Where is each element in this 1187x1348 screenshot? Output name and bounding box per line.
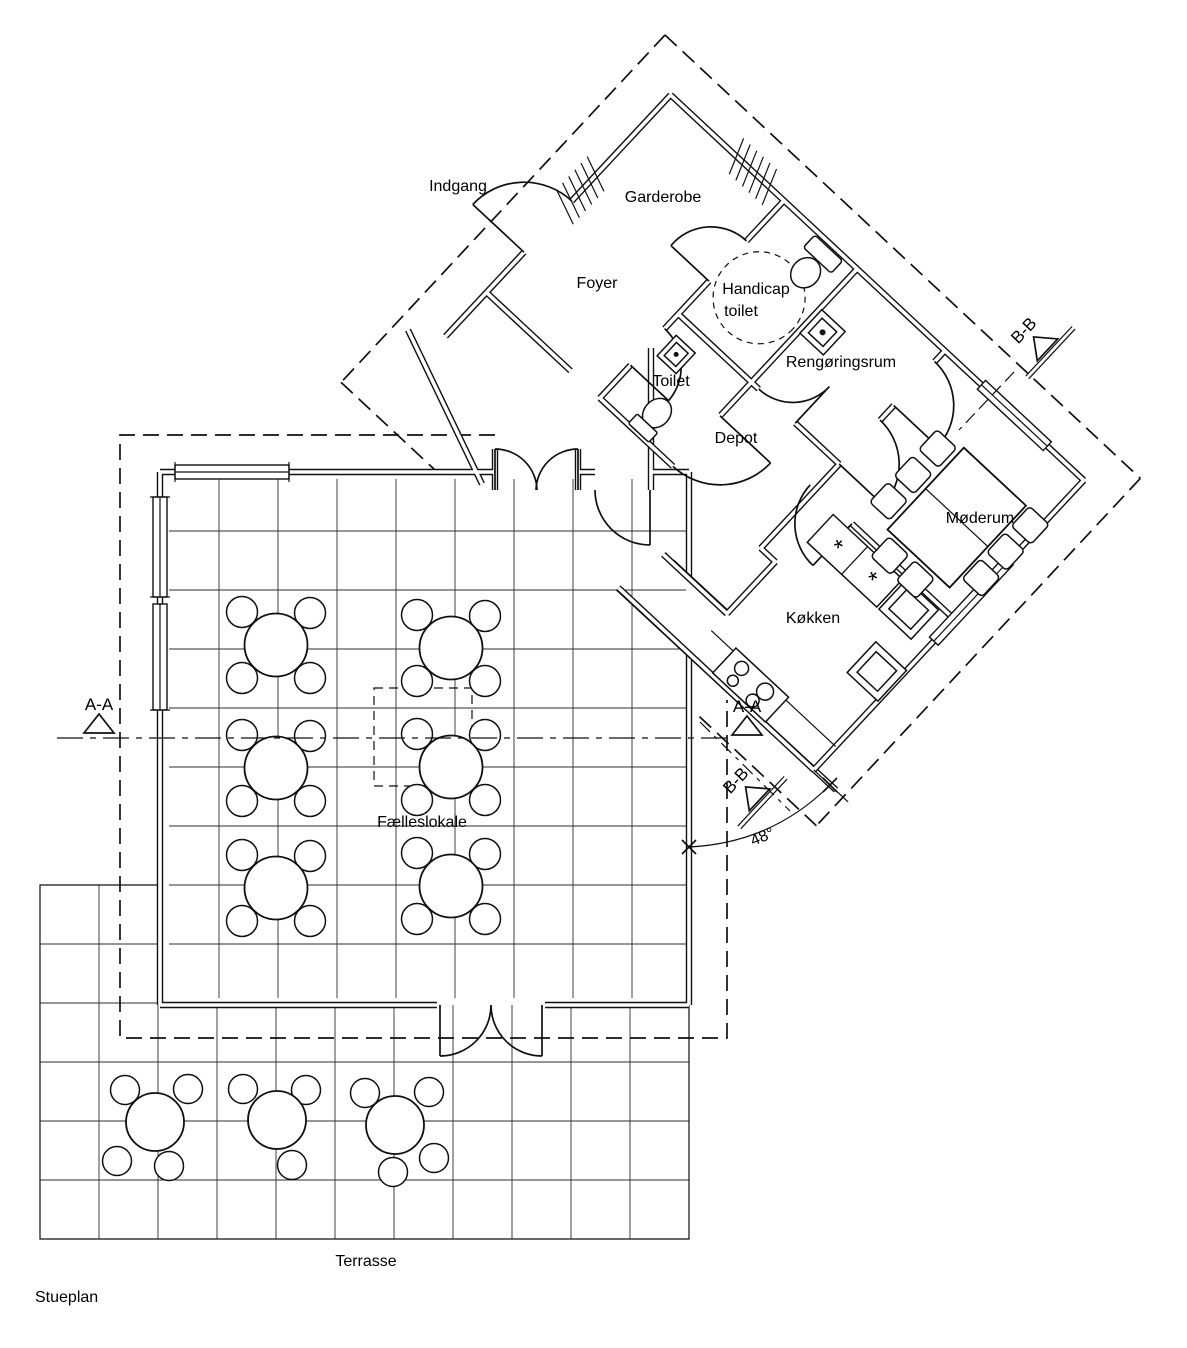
room-label-handicap-2: toilet xyxy=(724,303,758,320)
terrace-grid xyxy=(40,885,689,1239)
section-label-bb: B-B xyxy=(1007,314,1040,348)
room-label-garderobe: Garderobe xyxy=(625,189,702,206)
section-marker-aa-left: A-A xyxy=(84,695,114,733)
stueplan-page: * * A-A A-A xyxy=(0,0,1187,1348)
room-label-indgang: Indgang xyxy=(429,178,487,195)
round-table xyxy=(402,600,501,697)
round-table xyxy=(227,840,326,937)
section-label-aa: A-A xyxy=(85,695,114,714)
angle-label: 48° xyxy=(748,825,777,850)
room-label-rengoringsrum: Rengøringsrum xyxy=(786,354,896,371)
round-table xyxy=(227,720,326,817)
room-label-terrasse: Terrasse xyxy=(335,1253,396,1270)
room-label-depot: Depot xyxy=(715,430,758,447)
angle-dimension: 48° xyxy=(682,778,837,854)
annex-building: * * xyxy=(349,34,1130,802)
section-marker-bb-top: B-B xyxy=(995,298,1075,379)
room-label-foyer: Foyer xyxy=(577,275,619,292)
room-label-faelleslokale: Fælleslokale xyxy=(377,814,467,831)
room-label-handicap-1: Handicap xyxy=(722,281,790,298)
terrace-tables xyxy=(103,1075,449,1187)
round-table xyxy=(351,1078,449,1187)
common-room-tables xyxy=(227,597,501,937)
section-label-aa: A-A xyxy=(733,697,762,716)
round-table xyxy=(227,597,326,694)
plan-title: Stueplan xyxy=(35,1289,98,1306)
round-table xyxy=(402,838,501,935)
room-label-toilet: Toilet xyxy=(652,373,690,390)
round-table xyxy=(103,1075,203,1181)
round-table xyxy=(229,1075,321,1180)
room-label-koekken: Køkken xyxy=(786,610,840,627)
floor-plan-drawing: * * A-A A-A xyxy=(0,0,1187,1348)
room-label-moederum: Møderum xyxy=(946,510,1014,527)
